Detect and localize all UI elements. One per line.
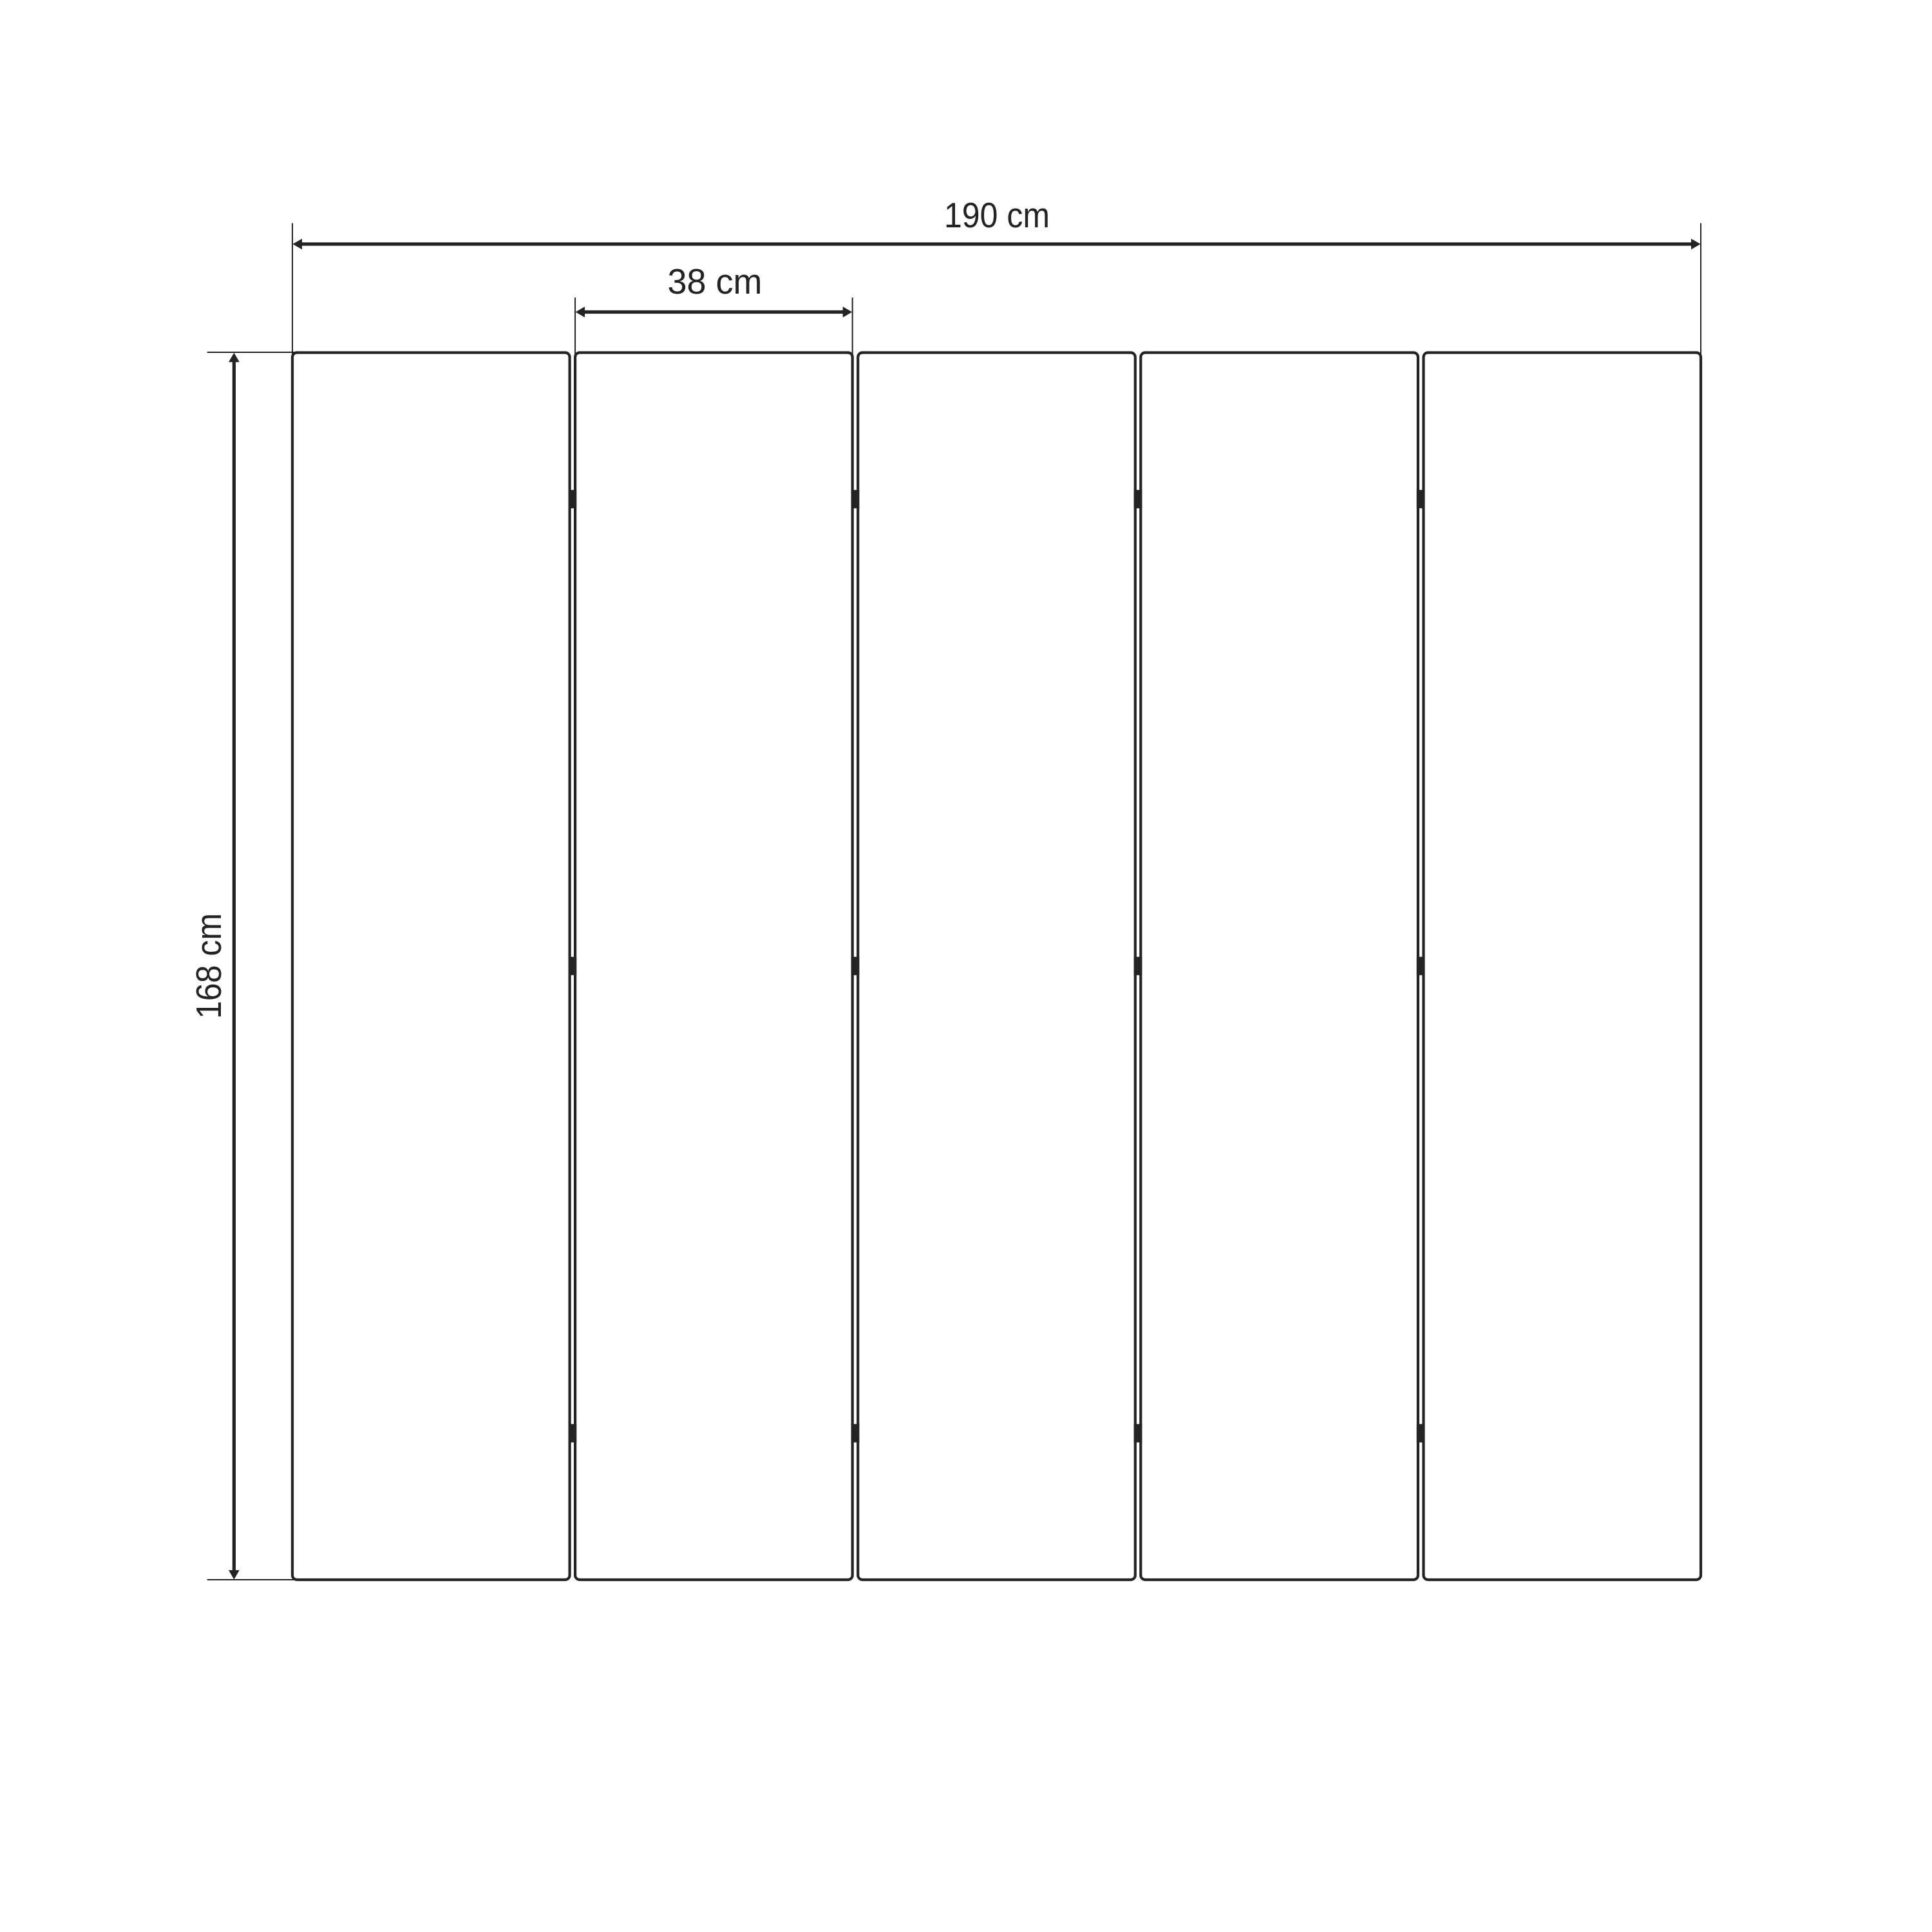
svg-text:190 cm: 190 cm	[944, 195, 1050, 235]
svg-text:38 cm: 38 cm	[668, 261, 762, 301]
svg-text:168 cm: 168 cm	[189, 913, 229, 1019]
